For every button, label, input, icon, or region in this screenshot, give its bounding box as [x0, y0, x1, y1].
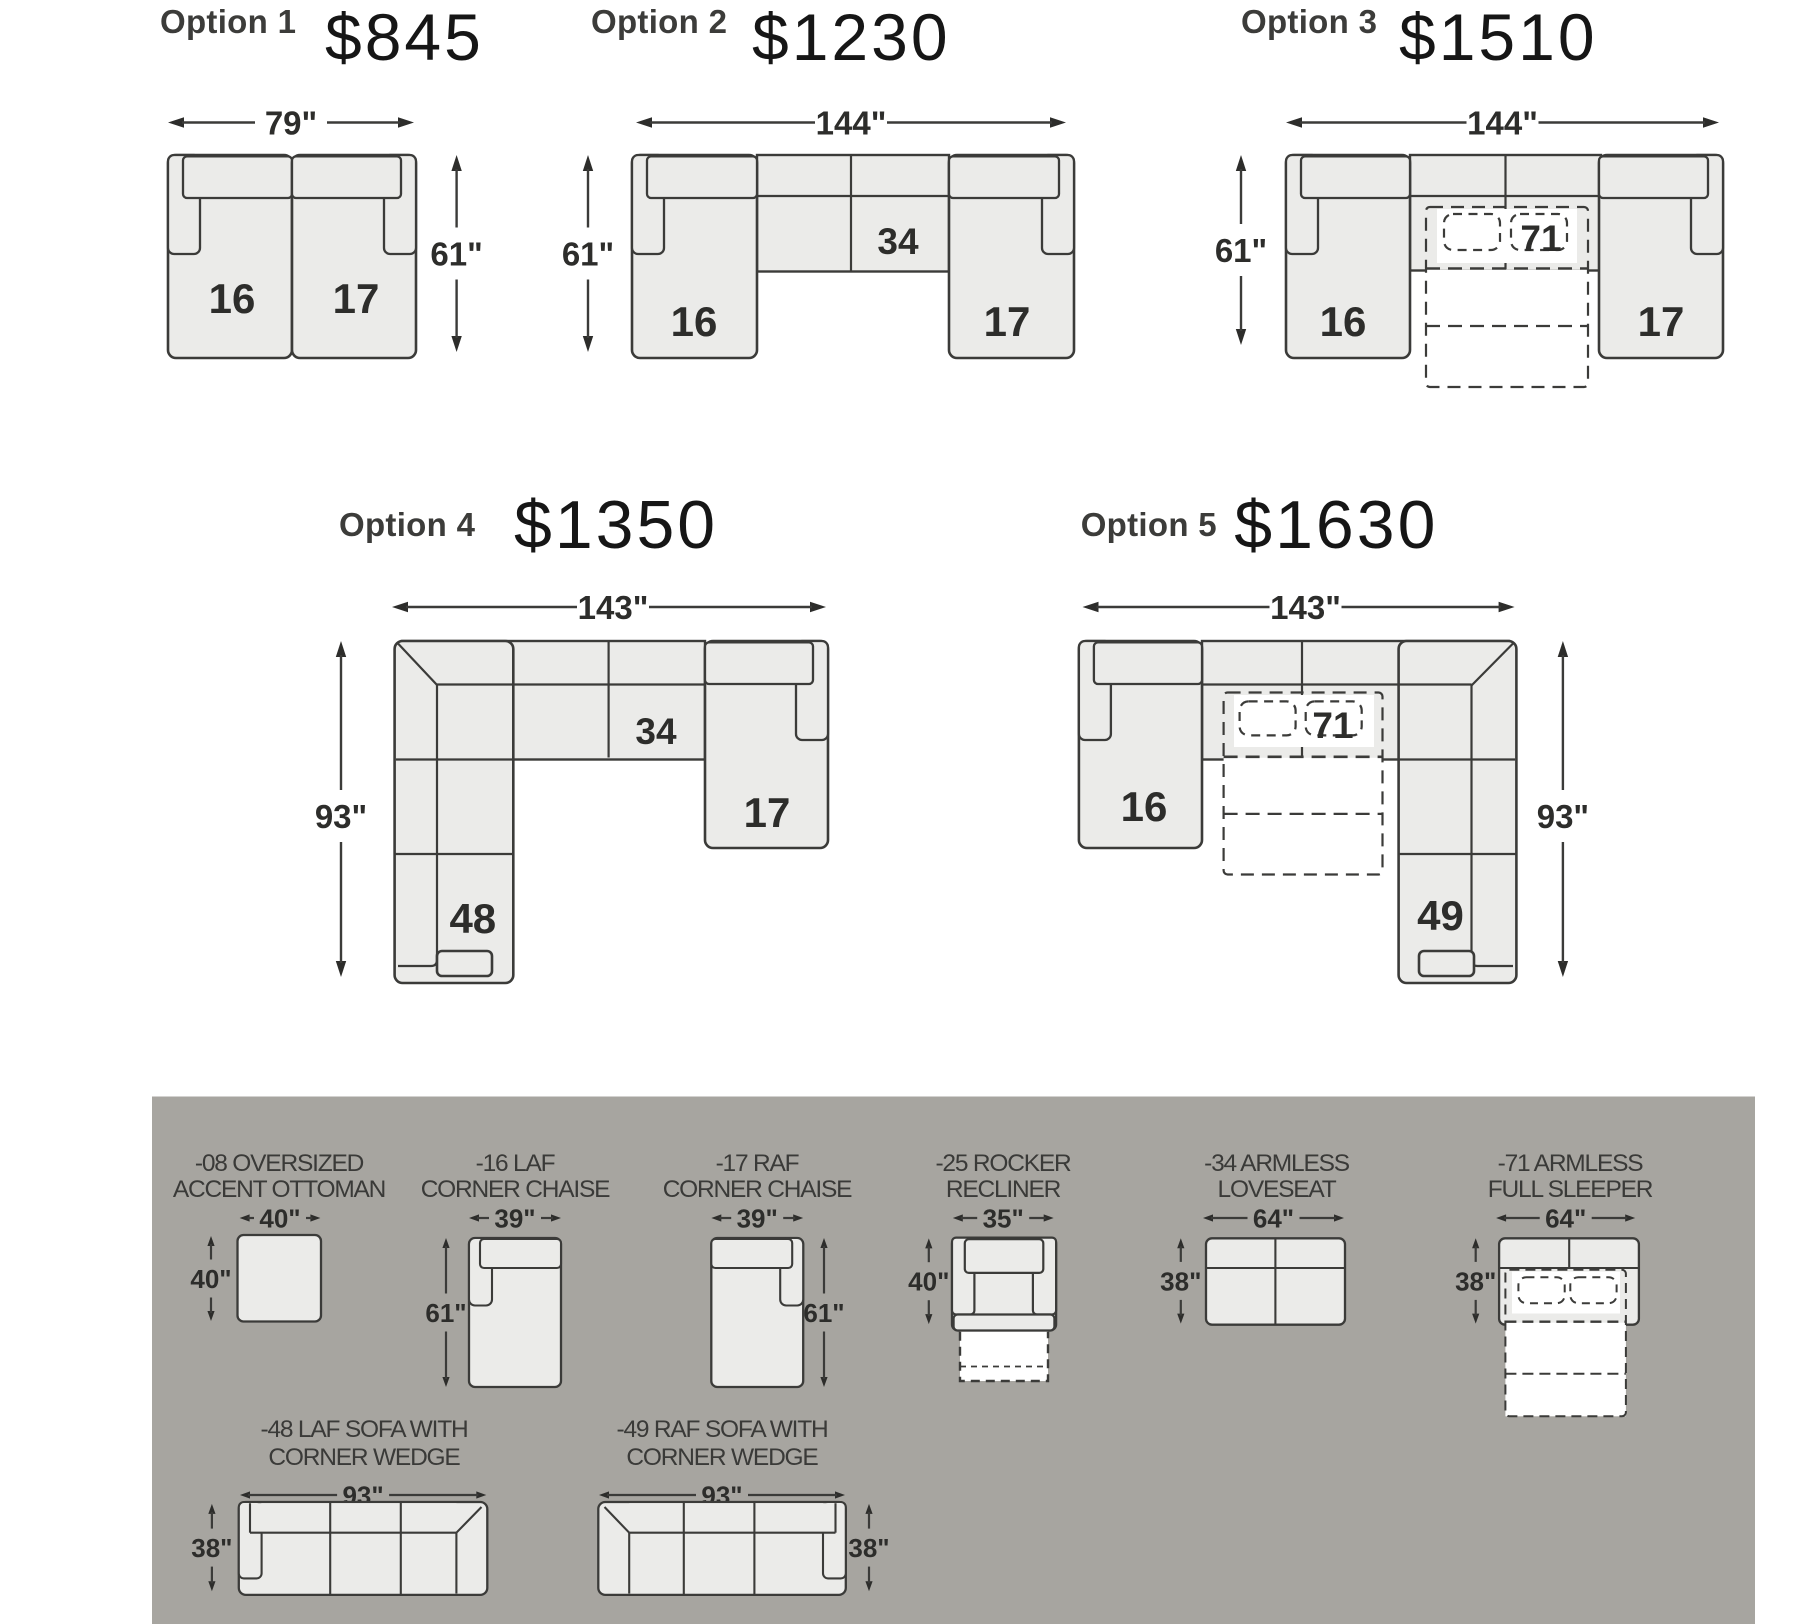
svg-text:$1230: $1230: [752, 0, 951, 74]
svg-text:93": 93": [315, 798, 367, 835]
svg-text:143": 143": [1270, 589, 1341, 626]
svg-text:71: 71: [1520, 218, 1561, 259]
svg-text:61": 61": [430, 235, 482, 272]
svg-text:16: 16: [671, 298, 718, 345]
svg-text:40": 40": [908, 1267, 949, 1297]
svg-text:Option 4: Option 4: [339, 506, 476, 543]
svg-text:LOVESEAT: LOVESEAT: [1218, 1176, 1337, 1203]
svg-text:49: 49: [1417, 892, 1464, 939]
svg-text:64": 64": [1253, 1203, 1294, 1233]
svg-text:61": 61": [562, 235, 614, 272]
svg-text:34: 34: [635, 711, 677, 752]
svg-text:17: 17: [744, 789, 791, 836]
svg-text:Option 2: Option 2: [591, 3, 727, 40]
svg-text:$845: $845: [325, 0, 484, 74]
svg-text:Option 1: Option 1: [160, 3, 296, 40]
svg-text:-08 OVERSIZED: -08 OVERSIZED: [195, 1150, 364, 1177]
svg-text:$1630: $1630: [1234, 487, 1438, 563]
svg-text:17: 17: [333, 275, 380, 322]
svg-text:Option 5: Option 5: [1081, 506, 1217, 543]
svg-text:38": 38": [1160, 1266, 1201, 1296]
svg-text:$1350: $1350: [514, 487, 718, 563]
svg-text:34: 34: [877, 221, 919, 262]
svg-text:-48 LAF SOFA WITH: -48 LAF SOFA WITH: [261, 1416, 468, 1443]
svg-text:17: 17: [984, 298, 1031, 345]
svg-text:38": 38": [848, 1533, 889, 1563]
svg-text:39": 39": [494, 1203, 535, 1233]
svg-text:16: 16: [1320, 298, 1367, 345]
svg-text:16: 16: [209, 275, 256, 322]
svg-text:40": 40": [190, 1264, 231, 1294]
svg-text:143": 143": [578, 589, 649, 626]
svg-text:93": 93": [1537, 798, 1589, 835]
svg-text:79": 79": [265, 104, 317, 141]
svg-text:-25 ROCKER: -25 ROCKER: [935, 1150, 1071, 1177]
svg-text:38": 38": [191, 1533, 232, 1563]
svg-text:-16 LAF: -16 LAF: [476, 1150, 555, 1177]
svg-text:$1510: $1510: [1399, 0, 1598, 74]
svg-text:RECLINER: RECLINER: [946, 1176, 1061, 1203]
svg-text:17: 17: [1638, 298, 1685, 345]
svg-text:CORNER WEDGE: CORNER WEDGE: [268, 1444, 460, 1471]
svg-text:ACCENT OTTOMAN: ACCENT OTTOMAN: [173, 1176, 385, 1203]
svg-text:61": 61": [803, 1298, 844, 1328]
svg-text:CORNER CHAISE: CORNER CHAISE: [421, 1176, 610, 1203]
svg-text:Option 3: Option 3: [1241, 3, 1377, 40]
svg-text:-34 ARMLESS: -34 ARMLESS: [1204, 1150, 1350, 1177]
svg-text:40": 40": [259, 1203, 300, 1233]
svg-text:48: 48: [449, 895, 496, 942]
svg-text:71: 71: [1312, 705, 1353, 746]
svg-text:FULL SLEEPER: FULL SLEEPER: [1488, 1176, 1653, 1203]
svg-text:-17 RAF: -17 RAF: [716, 1150, 799, 1177]
svg-text:64": 64": [1545, 1203, 1586, 1233]
svg-text:61": 61": [425, 1298, 466, 1328]
svg-text:CORNER WEDGE: CORNER WEDGE: [626, 1444, 818, 1471]
svg-text:35": 35": [983, 1203, 1024, 1233]
svg-text:61": 61": [1215, 232, 1267, 269]
svg-text:-71 ARMLESS: -71 ARMLESS: [1498, 1150, 1644, 1177]
svg-text:16: 16: [1121, 783, 1168, 830]
svg-text:38": 38": [1455, 1266, 1496, 1296]
svg-text:144": 144": [816, 104, 887, 141]
svg-text:-49 RAF SOFA WITH: -49 RAF SOFA WITH: [616, 1416, 827, 1443]
svg-text:39": 39": [737, 1203, 778, 1233]
svg-text:144": 144": [1467, 104, 1538, 141]
svg-text:CORNER CHAISE: CORNER CHAISE: [663, 1176, 852, 1203]
